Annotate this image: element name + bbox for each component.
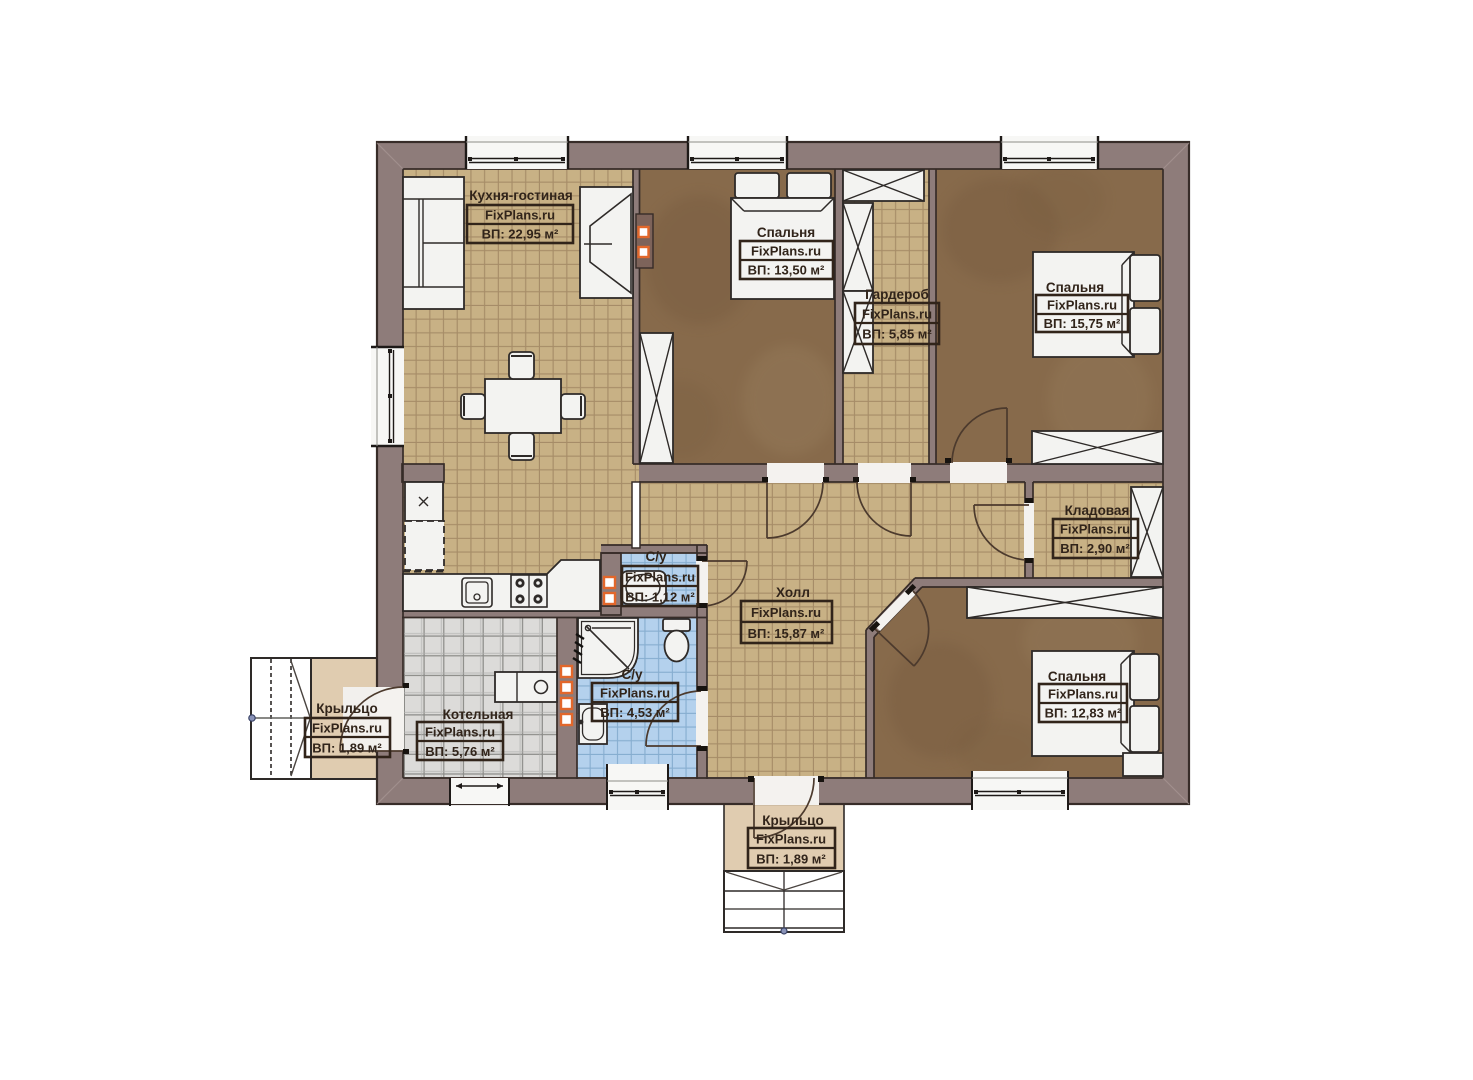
svg-text:Крыльцо: Крыльцо xyxy=(762,813,823,828)
svg-text:С/у: С/у xyxy=(621,667,643,682)
svg-text:ВП: 22,95 м²: ВП: 22,95 м² xyxy=(482,227,559,242)
svg-text:FixPlans.ru: FixPlans.ru xyxy=(1048,687,1118,702)
svg-text:ВП: 1,12 м²: ВП: 1,12 м² xyxy=(625,590,695,605)
svg-text:FixPlans.ru: FixPlans.ru xyxy=(600,686,670,701)
svg-text:Кухня-гостиная: Кухня-гостиная xyxy=(469,188,572,203)
svg-text:ВП: 1,89 м²: ВП: 1,89 м² xyxy=(756,852,826,867)
svg-text:Спальня: Спальня xyxy=(757,225,815,240)
svg-text:Холл: Холл xyxy=(776,585,810,600)
svg-text:FixPlans.ru: FixPlans.ru xyxy=(312,721,382,736)
svg-text:Гардероб: Гардероб xyxy=(865,287,929,302)
svg-text:FixPlans.ru: FixPlans.ru xyxy=(485,208,555,223)
svg-text:Спальня: Спальня xyxy=(1048,669,1106,684)
svg-text:Кладовая: Кладовая xyxy=(1065,503,1130,518)
svg-text:ВП: 5,85 м²: ВП: 5,85 м² xyxy=(862,327,932,342)
svg-text:ВП: 15,75 м²: ВП: 15,75 м² xyxy=(1044,316,1121,331)
svg-text:FixPlans.ru: FixPlans.ru xyxy=(751,244,821,259)
svg-text:ВП: 2,90 м²: ВП: 2,90 м² xyxy=(1060,541,1130,556)
svg-text:ВП: 15,87 м²: ВП: 15,87 м² xyxy=(748,626,825,641)
svg-text:ВП: 1,89 м²: ВП: 1,89 м² xyxy=(312,741,382,756)
svg-text:Спальня: Спальня xyxy=(1046,280,1104,295)
svg-text:FixPlans.ru: FixPlans.ru xyxy=(625,570,695,585)
svg-text:FixPlans.ru: FixPlans.ru xyxy=(756,832,826,847)
svg-text:С/у: С/у xyxy=(645,549,667,564)
svg-text:Крыльцо: Крыльцо xyxy=(316,701,377,716)
svg-text:FixPlans.ru: FixPlans.ru xyxy=(1047,298,1117,313)
svg-text:FixPlans.ru: FixPlans.ru xyxy=(862,307,932,322)
svg-text:FixPlans.ru: FixPlans.ru xyxy=(425,725,495,740)
svg-text:FixPlans.ru: FixPlans.ru xyxy=(1060,522,1130,537)
svg-text:ВП: 5,76 м²: ВП: 5,76 м² xyxy=(425,744,495,759)
svg-text:Котельная: Котельная xyxy=(443,707,514,722)
svg-text:ВП: 12,83 м²: ВП: 12,83 м² xyxy=(1045,706,1122,721)
svg-text:FixPlans.ru: FixPlans.ru xyxy=(751,605,821,620)
svg-text:ВП: 4,53 м²: ВП: 4,53 м² xyxy=(600,705,670,720)
svg-text:ВП: 13,50 м²: ВП: 13,50 м² xyxy=(748,263,825,278)
